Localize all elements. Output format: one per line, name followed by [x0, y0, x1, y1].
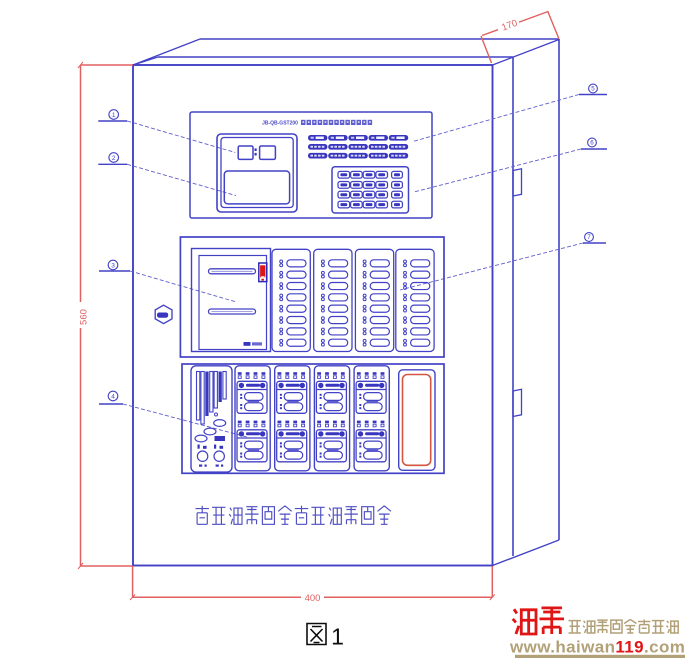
- svg-text:560: 560: [79, 309, 90, 325]
- svg-text:7: 7: [587, 234, 591, 241]
- svg-text:www.haiwan119.com: www.haiwan119.com: [509, 638, 685, 657]
- svg-text:400: 400: [305, 593, 321, 604]
- svg-text:1: 1: [112, 112, 116, 119]
- svg-text:1: 1: [331, 624, 344, 650]
- svg-text:JB-QB-GST200: JB-QB-GST200: [262, 121, 298, 127]
- svg-text:5: 5: [591, 86, 595, 93]
- svg-text:170: 170: [500, 18, 519, 34]
- svg-text:3: 3: [111, 262, 115, 269]
- svg-text:2: 2: [112, 155, 116, 162]
- svg-text:6: 6: [590, 140, 594, 147]
- svg-text:4: 4: [111, 393, 115, 400]
